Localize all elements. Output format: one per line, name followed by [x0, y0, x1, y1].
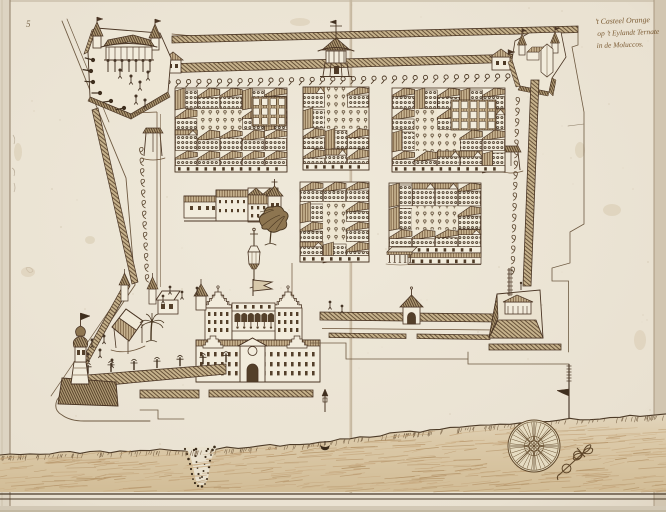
- svg-text:in de Moluccos.: in de Moluccos.: [597, 39, 644, 50]
- svg-text:5: 5: [26, 19, 31, 29]
